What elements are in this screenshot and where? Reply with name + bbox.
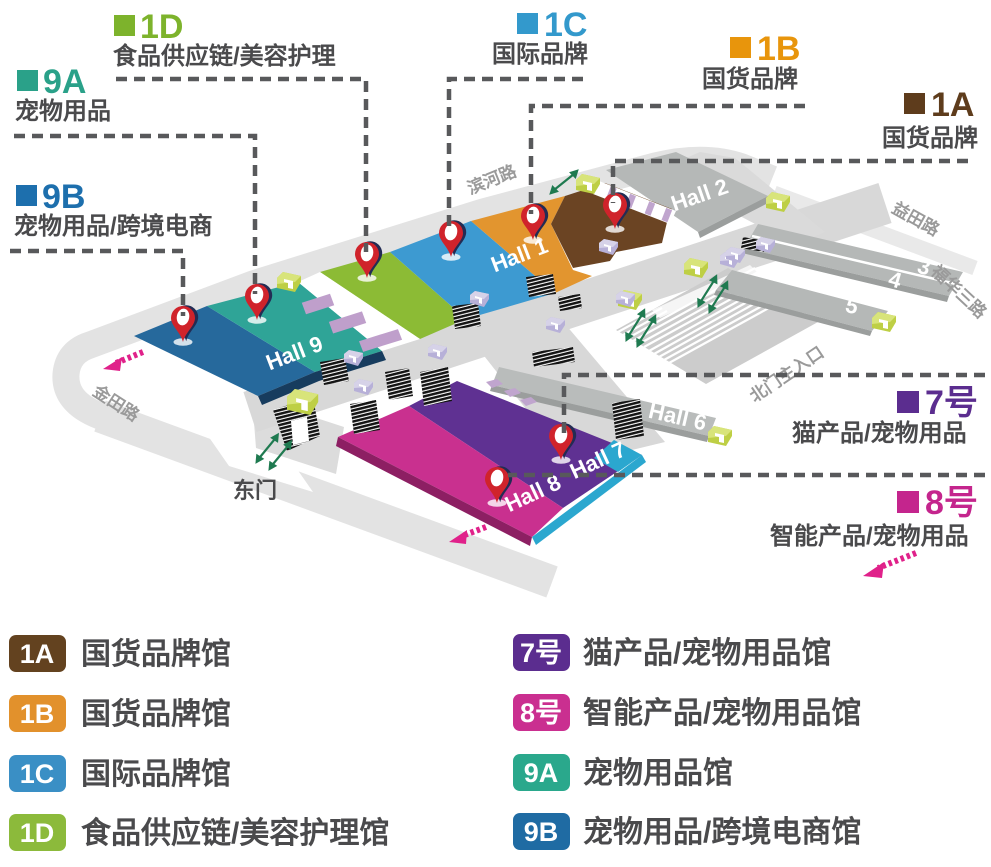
svg-text:食品供应链/美容护理: 食品供应链/美容护理 bbox=[113, 42, 336, 70]
svg-text:1C: 1C bbox=[544, 6, 587, 44]
svg-text:宠物用品: 宠物用品 bbox=[15, 97, 111, 125]
svg-text:1C: 1C bbox=[20, 759, 55, 789]
svg-text:9B: 9B bbox=[42, 178, 85, 216]
svg-text:9A: 9A bbox=[524, 758, 559, 788]
svg-text:国货品牌馆: 国货品牌馆 bbox=[81, 697, 231, 731]
svg-text:1D: 1D bbox=[20, 818, 55, 848]
svg-text:国货品牌: 国货品牌 bbox=[882, 124, 978, 152]
svg-text:1A: 1A bbox=[931, 86, 974, 124]
svg-text:猫产品/宠物用品馆: 猫产品/宠物用品馆 bbox=[583, 636, 831, 670]
svg-text:7号: 7号 bbox=[925, 384, 978, 422]
svg-text:国货品牌馆: 国货品牌馆 bbox=[81, 637, 231, 671]
svg-text:智能产品/宠物用品馆: 智能产品/宠物用品馆 bbox=[583, 696, 861, 730]
svg-text:国际品牌馆: 国际品牌馆 bbox=[81, 757, 231, 791]
svg-text:食品供应链/美容护理馆: 食品供应链/美容护理馆 bbox=[81, 816, 389, 850]
svg-text:智能产品/宠物用品: 智能产品/宠物用品 bbox=[770, 522, 969, 550]
svg-text:9A: 9A bbox=[43, 63, 86, 101]
svg-text:8号: 8号 bbox=[520, 698, 562, 728]
svg-text:宠物用品/跨境电商馆: 宠物用品/跨境电商馆 bbox=[583, 815, 861, 849]
svg-text:1A: 1A bbox=[20, 639, 55, 669]
svg-text:8号: 8号 bbox=[925, 484, 978, 522]
svg-text:7号: 7号 bbox=[520, 638, 562, 668]
svg-text:9B: 9B bbox=[524, 817, 559, 847]
svg-text:1B: 1B bbox=[20, 699, 55, 729]
svg-text:宠物用品/跨境电商: 宠物用品/跨境电商 bbox=[14, 212, 213, 240]
svg-text:1D: 1D bbox=[140, 8, 183, 46]
svg-text:国际品牌: 国际品牌 bbox=[492, 40, 588, 68]
svg-text:猫产品/宠物用品: 猫产品/宠物用品 bbox=[792, 419, 967, 447]
svg-text:国货品牌: 国货品牌 bbox=[702, 65, 798, 93]
svg-text:宠物用品馆: 宠物用品馆 bbox=[583, 756, 733, 790]
svg-text:东门: 东门 bbox=[233, 478, 277, 503]
svg-text:1B: 1B bbox=[757, 30, 800, 68]
